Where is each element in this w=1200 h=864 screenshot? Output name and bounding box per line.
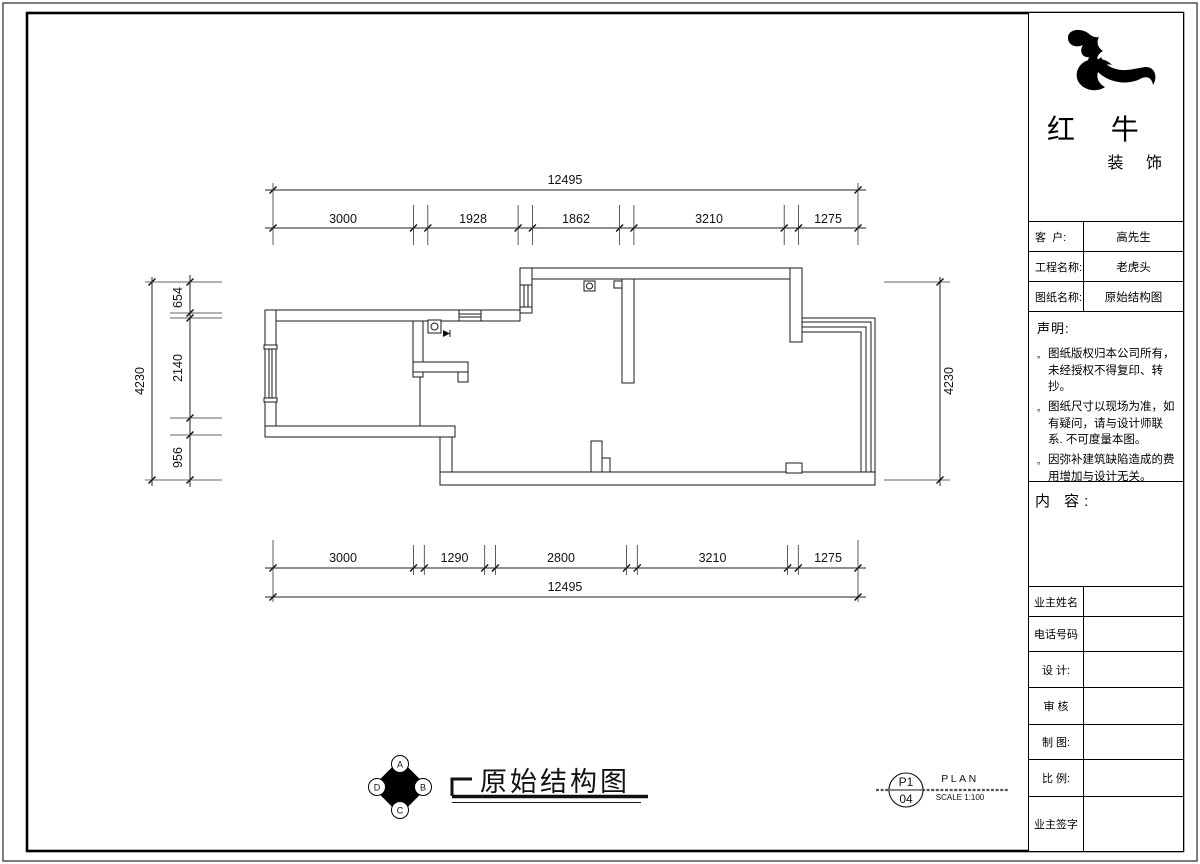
statement-text: 因弥补建筑缺陷造成的费用增加与设计无关。: [1048, 452, 1177, 485]
outer-border: [3, 3, 1197, 861]
bay-window: [802, 318, 875, 485]
compass-symbol: A B C D: [369, 756, 432, 819]
floor-plan: [264, 268, 875, 485]
compass-label-b: B: [420, 783, 426, 793]
window-kitchen-wall: [519, 285, 533, 307]
bullet: 。: [1037, 346, 1048, 395]
statement-text: 图纸版权归本公司所有，未经授权不得复印、转抄。: [1048, 346, 1177, 395]
sig-value-blank: [1084, 587, 1183, 616]
dim-top-seg-3: 1862: [562, 212, 590, 226]
sig-row-review: 审 核: [1029, 688, 1183, 725]
statement-item: 。 因弥补建筑缺陷造成的费用增加与设计无关。: [1037, 452, 1177, 485]
dim-left-seg-3: 956: [171, 447, 185, 468]
field-value: 原始结构图: [1084, 282, 1183, 311]
statement-heading: 声明:: [1037, 320, 1177, 338]
sig-row-scale: 比 例:: [1029, 760, 1183, 797]
brand-name: 红 牛: [1029, 115, 1183, 146]
dim-top-seg-2: 1928: [459, 212, 487, 226]
drawing-title: 原始结构图: [452, 767, 648, 803]
field-value: 老虎头: [1084, 252, 1183, 281]
window-top-wall: [459, 309, 481, 322]
dim-bottom-seg-4: 3210: [699, 551, 727, 565]
sig-label: 审 核: [1029, 688, 1084, 724]
dim-bottom-seg-5: 1275: [814, 551, 842, 565]
sig-value-blank: [1084, 760, 1183, 796]
dim-top-seg-4: 3210: [695, 212, 723, 226]
sig-label: 设 计:: [1029, 652, 1084, 687]
sheet-reference: P1 04 PLAN SCALE 1:100: [876, 773, 1008, 807]
dim-right-overall: 4230: [942, 367, 956, 395]
statement-item: 。 图纸版权归本公司所有，未经授权不得复印、转抄。: [1037, 346, 1177, 395]
sig-value-blank: [1084, 725, 1183, 759]
dim-bottom-seg-1: 3000: [329, 551, 357, 565]
flue-symbol: [428, 320, 441, 333]
dim-bottom-seg-2: 1290: [441, 551, 469, 565]
dim-top-seg-1: 3000: [329, 212, 357, 226]
statement-item: 。 图纸尺寸以现场为准，如有疑问，请与设计师联系. 不可度量本图。: [1037, 399, 1177, 448]
company-logo: 红 牛 装 饰: [1029, 13, 1183, 222]
sig-label: 制 图:: [1029, 725, 1084, 759]
content-heading: 内 容:: [1035, 493, 1093, 510]
dimensions-right: 4230: [884, 277, 956, 486]
brand-subname: 装 饰: [1029, 149, 1183, 173]
sig-row-draft: 制 图:: [1029, 725, 1183, 760]
bull-logo-icon: [1046, 27, 1166, 115]
field-value: 高先生: [1084, 222, 1183, 251]
bullet: 。: [1037, 452, 1048, 485]
window-left-wall: [264, 345, 277, 402]
dimensions-left: 4230 654 2140 956: [133, 275, 222, 487]
dim-bottom-overall: 12495: [548, 580, 583, 594]
field-row-sheet-name: 图纸名称: 原始结构图: [1029, 282, 1183, 312]
sig-row-owner-name: 业主姓名: [1029, 587, 1183, 617]
dimensions-top: 12495 3000 1928 1862: [265, 173, 866, 245]
sig-row-phone: 电话号码: [1029, 617, 1183, 652]
field-row-project: 工程名称: 老虎头: [1029, 252, 1183, 282]
sig-label: 业主姓名: [1029, 587, 1084, 616]
sheet-code: P1: [899, 775, 914, 789]
sheet-type: PLAN: [941, 773, 978, 785]
dim-top-overall: 12495: [548, 173, 583, 187]
valve-symbol: [443, 330, 450, 337]
sheet-number: 04: [899, 792, 913, 806]
sig-value-blank: [1084, 797, 1183, 851]
dim-top-seg-5: 1275: [814, 212, 842, 226]
bullet: 。: [1037, 399, 1048, 448]
dim-left-seg-2: 2140: [171, 354, 185, 382]
compass-label-a: A: [397, 760, 403, 770]
sig-row-design: 设 计:: [1029, 652, 1183, 688]
drawing-title-text: 原始结构图: [480, 767, 630, 797]
compass-label-c: C: [397, 806, 404, 816]
sig-value-blank: [1084, 617, 1183, 651]
dim-bottom-seg-3: 2800: [547, 551, 575, 565]
dim-left-overall: 4230: [133, 367, 147, 395]
statement-text: 图纸尺寸以现场为准，如有疑问，请与设计师联系. 不可度量本图。: [1048, 399, 1177, 448]
drawing-sheet: 12495 3000 1928 1862: [0, 0, 1200, 864]
field-label: 工程名称:: [1029, 252, 1084, 281]
sig-label: 比 例:: [1029, 760, 1084, 796]
sheet-canvas: 12495 3000 1928 1862: [0, 0, 1200, 864]
statement-section: 声明: 。 图纸版权归本公司所有，未经授权不得复印、转抄。 。 图纸尺寸以现场为…: [1029, 312, 1183, 482]
content-section: 内 容:: [1029, 482, 1183, 587]
field-label: 图纸名称:: [1029, 282, 1084, 311]
sig-row-owner-signature: 业主签字: [1029, 797, 1183, 851]
sig-value-blank: [1084, 652, 1183, 687]
field-row-client: 客 户: 高先生: [1029, 222, 1183, 252]
compass-label-d: D: [374, 783, 381, 793]
wall-niche-symbol: [614, 281, 622, 288]
sig-label: 电话号码: [1029, 617, 1084, 651]
dimensions-bottom: 3000 1290 2800 3210 1275 12495: [265, 540, 866, 602]
field-label: 客 户:: [1029, 222, 1084, 251]
dim-left-seg-1: 654: [171, 287, 185, 308]
sig-label: 业主签字: [1029, 797, 1084, 851]
title-block: 红 牛 装 饰 客 户: 高先生 工程名称: 老虎头 图纸名称: 原始结构图 声…: [1028, 13, 1183, 851]
flue-symbol-2: [584, 281, 595, 291]
sig-value-blank: [1084, 688, 1183, 724]
inner-border: [27, 13, 1183, 851]
sheet-scale: SCALE 1:100: [936, 793, 985, 802]
floor-plan-walls: [265, 268, 875, 485]
